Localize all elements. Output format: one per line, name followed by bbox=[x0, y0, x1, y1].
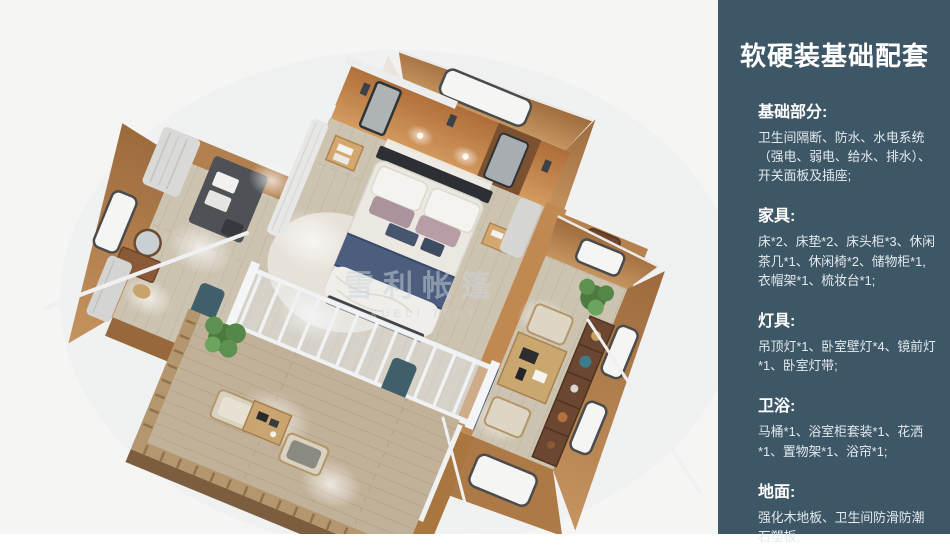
section-furniture: 家具: 床*2、床垫*2、床头柜*3、休闲茶几*1、休闲椅*2、储物柜*1,衣帽… bbox=[758, 202, 936, 290]
floor-plan-svg: 雪利帐篷 XUELI TENT bbox=[0, 0, 718, 534]
section-bath-body: 马桶*1、浴室柜套装*1、花洒*1、置物架*1、浴帘*1; bbox=[758, 422, 936, 460]
sidebar-title: 软硬装基础配套 bbox=[740, 42, 936, 72]
watermark-en: XUELI TENT bbox=[369, 308, 478, 320]
section-floor-body: 强化木地板、卫生间防滑防潮石塑板; bbox=[758, 508, 936, 546]
section-basics-heading: 基础部分: bbox=[758, 98, 936, 122]
section-floor: 地面: 强化木地板、卫生间防滑防潮石塑板; bbox=[758, 478, 936, 546]
section-basics: 基础部分: 卫生间隔断、防水、水电系统（强电、弱电、给水、排水）、开关面板及插座… bbox=[758, 98, 936, 186]
section-lighting-heading: 灯具: bbox=[758, 307, 936, 331]
section-furniture-body: 床*2、床垫*2、床头柜*3、休闲茶几*1、休闲椅*2、储物柜*1,衣帽架*1、… bbox=[758, 232, 936, 290]
section-lighting-body: 吊顶灯*1、卧室壁灯*4、镜前灯*1、卧室灯带; bbox=[758, 337, 936, 375]
page: 雪利帐篷 XUELI TENT 软硬装基础配套 基础部分: 卫生间隔断、防水、水… bbox=[0, 0, 950, 534]
floor-plan-render: 雪利帐篷 XUELI TENT bbox=[0, 0, 718, 534]
sidebar: 软硬装基础配套 基础部分: 卫生间隔断、防水、水电系统（强电、弱电、给水、排水）… bbox=[718, 0, 950, 534]
section-floor-heading: 地面: bbox=[758, 478, 936, 502]
section-bath-heading: 卫浴: bbox=[758, 392, 936, 416]
watermark-cn: 雪利帐篷 bbox=[344, 270, 500, 303]
section-basics-body: 卫生间隔断、防水、水电系统（强电、弱电、给水、排水）、开关面板及插座; bbox=[758, 128, 936, 186]
section-bath: 卫浴: 马桶*1、浴室柜套装*1、花洒*1、置物架*1、浴帘*1; bbox=[758, 392, 936, 460]
section-furniture-heading: 家具: bbox=[758, 202, 936, 226]
section-lighting: 灯具: 吊顶灯*1、卧室壁灯*4、镜前灯*1、卧室灯带; bbox=[758, 307, 936, 375]
